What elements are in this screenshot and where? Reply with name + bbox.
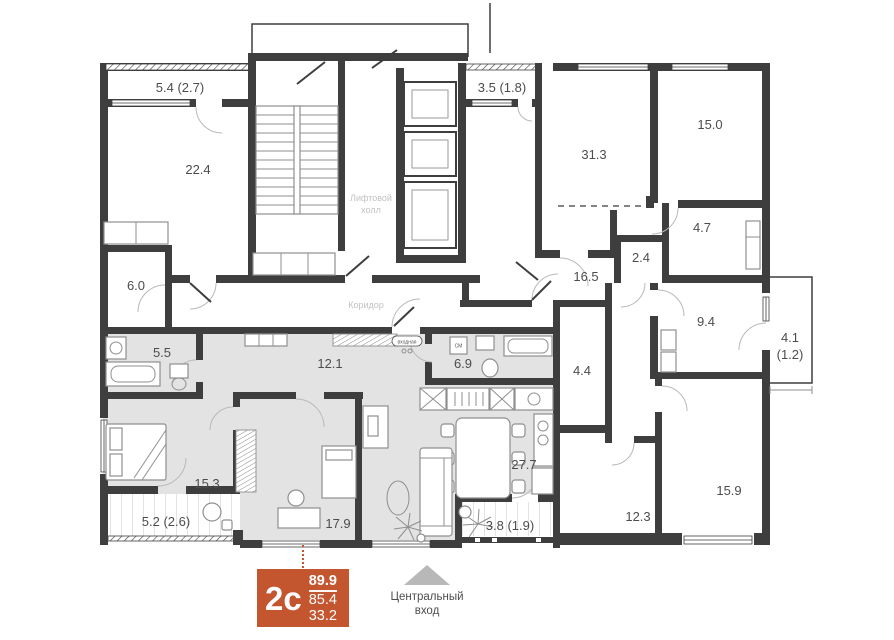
room-label-12-1: 12.1 xyxy=(317,356,342,371)
floor-plan-page: 5.4 (2.7) 22.4 6.0 3.5 (1.8) 31.3 15.0 4… xyxy=(0,0,894,640)
sofa-icon xyxy=(420,448,452,536)
central-entrance-marker: Центральный вход xyxy=(385,565,469,618)
room-label-9-4: 9.4 xyxy=(697,314,715,329)
chair-icon xyxy=(288,490,304,506)
wardrobe-icon xyxy=(333,334,397,346)
unit-total-area: 89.9 xyxy=(309,573,337,592)
floor-plan-svg: 5.4 (2.7) 22.4 6.0 3.5 (1.8) 31.3 15.0 4… xyxy=(0,0,894,640)
kitchen-sink-icon xyxy=(515,388,553,410)
entrance-label: Центральный вход xyxy=(385,590,469,618)
unit-living-area: 33.2 xyxy=(309,608,337,624)
room-label-4-1: 4.1 xyxy=(781,330,799,345)
entry-tag-label: входная xyxy=(398,340,417,346)
room-label-22-4: 22.4 xyxy=(185,162,210,177)
elevator-hall-label-2: холл xyxy=(361,205,381,215)
room-label-27-7: 27.7 xyxy=(511,457,536,472)
staircase xyxy=(253,106,338,275)
chair-icon xyxy=(512,424,525,437)
washbasin-icon xyxy=(106,337,126,359)
room-label-15-9: 15.9 xyxy=(716,483,741,498)
dining-table-icon xyxy=(456,418,510,498)
room-label-5-5: 5.5 xyxy=(153,345,171,360)
room-label-balcony-5-4: 5.4 (2.7) xyxy=(156,80,204,95)
unit-areas: 89.9 85.4 33.2 xyxy=(309,573,337,624)
chair-icon xyxy=(222,520,232,530)
unit-card-connector xyxy=(302,545,304,568)
washbasin-icon xyxy=(476,336,494,350)
elevator-hall-label: Лифтовой xyxy=(350,193,392,203)
room-label-balcony-3-5: 3.5 (1.8) xyxy=(478,80,526,95)
unit-type-label: 2с xyxy=(265,582,302,615)
entrance-label-line2: вход xyxy=(385,604,469,618)
washer-tag-label: СМ xyxy=(455,344,463,350)
elevators xyxy=(404,82,456,248)
room-label-4-4: 4.4 xyxy=(573,363,591,378)
room-label-31-3: 31.3 xyxy=(581,147,606,162)
desk-icon xyxy=(278,508,320,528)
room-label-15-0: 15.0 xyxy=(697,117,722,132)
chair-icon xyxy=(512,480,525,493)
room-label-balcony-3-8: 3.8 (1.9) xyxy=(486,518,534,533)
room-label-4-7: 4.7 xyxy=(693,220,711,235)
room-label-6-0: 6.0 xyxy=(127,278,145,293)
room-label-16-5: 16.5 xyxy=(573,269,598,284)
room-label-2-4: 2.4 xyxy=(632,250,650,265)
room-label-15-3: 15.3 xyxy=(194,476,219,491)
room-label-balcony-5-2: 5.2 (2.6) xyxy=(142,514,190,529)
table-icon xyxy=(203,503,221,521)
room-label-12-3: 12.3 xyxy=(625,509,650,524)
unit-area: 85.4 xyxy=(309,592,337,608)
room-label-6-9: 6.9 xyxy=(454,356,472,371)
chair-icon xyxy=(441,424,454,437)
room-label-4-1-coef: (1.2) xyxy=(777,347,804,362)
entrance-arrow-icon xyxy=(404,565,450,585)
stove-icon xyxy=(534,414,553,466)
wardrobe-icon xyxy=(236,430,256,492)
corridor-label: Коридор xyxy=(348,300,384,310)
room-label-17-9: 17.9 xyxy=(325,516,350,531)
entrance-label-line1: Центральный xyxy=(385,590,469,604)
unit-card[interactable]: 2с 89.9 85.4 33.2 xyxy=(257,569,349,627)
toilet-icon xyxy=(482,359,498,377)
toilet-icon xyxy=(170,364,188,378)
